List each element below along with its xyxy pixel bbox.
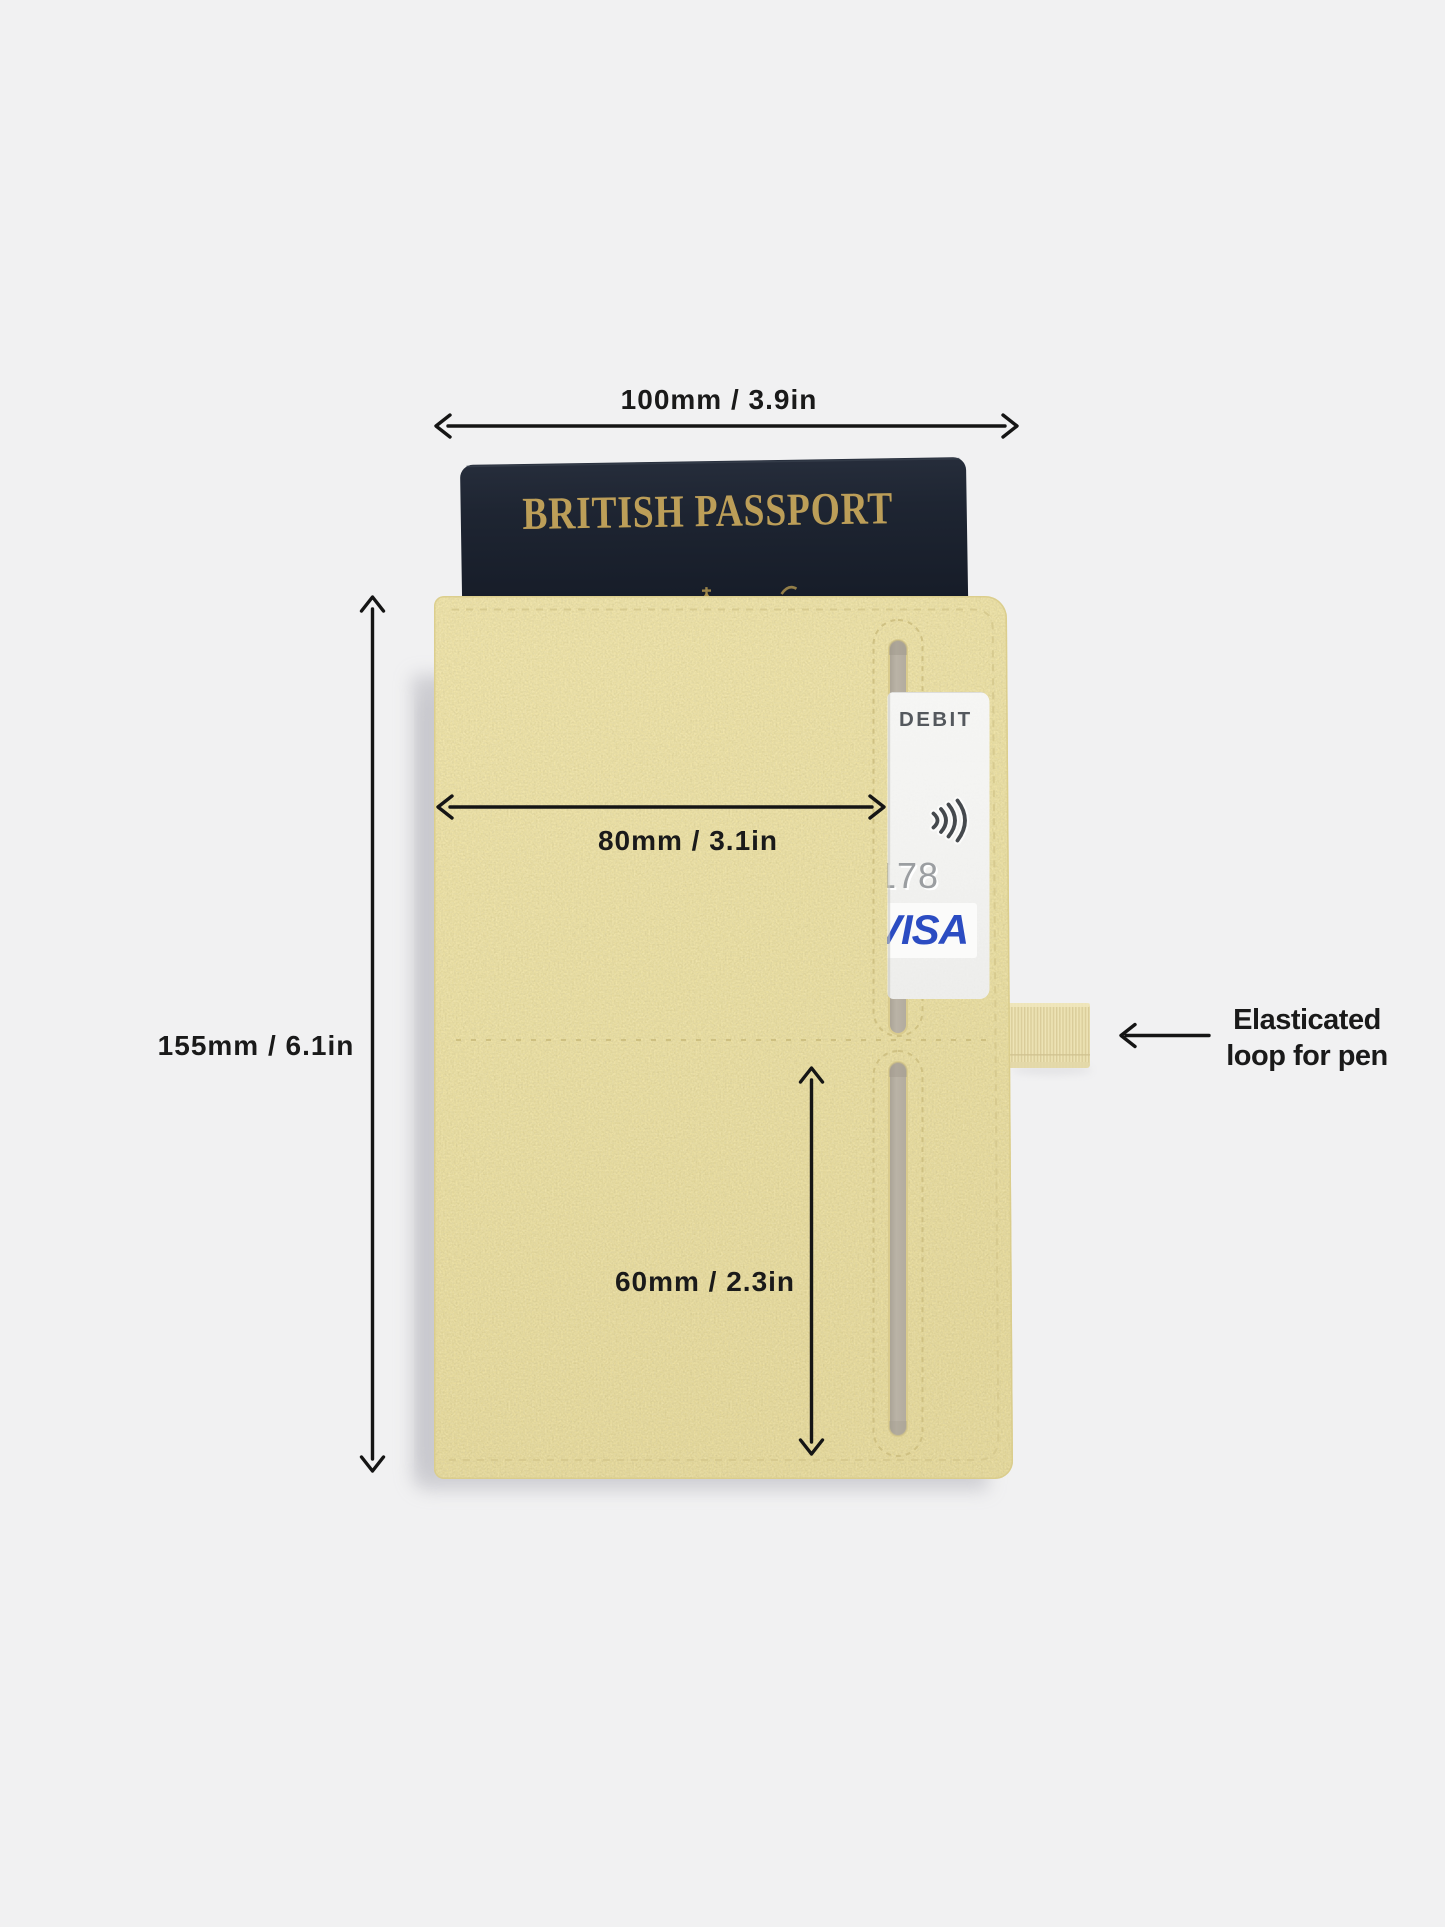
- svg-text:Elasticated: Elasticated: [1233, 1004, 1381, 1036]
- svg-text:80mm / 3.1in: 80mm / 3.1in: [598, 825, 778, 856]
- svg-text:155mm / 6.1in: 155mm / 6.1in: [158, 1030, 355, 1061]
- svg-text:60mm / 2.3in: 60mm / 2.3in: [615, 1266, 795, 1297]
- svg-text:loop for pen: loop for pen: [1226, 1040, 1388, 1072]
- svg-text:BRITISH PASSPORT: BRITISH PASSPORT: [522, 484, 894, 540]
- svg-text:DEBIT: DEBIT: [899, 708, 973, 731]
- svg-text:100mm / 3.9in: 100mm / 3.9in: [621, 384, 818, 415]
